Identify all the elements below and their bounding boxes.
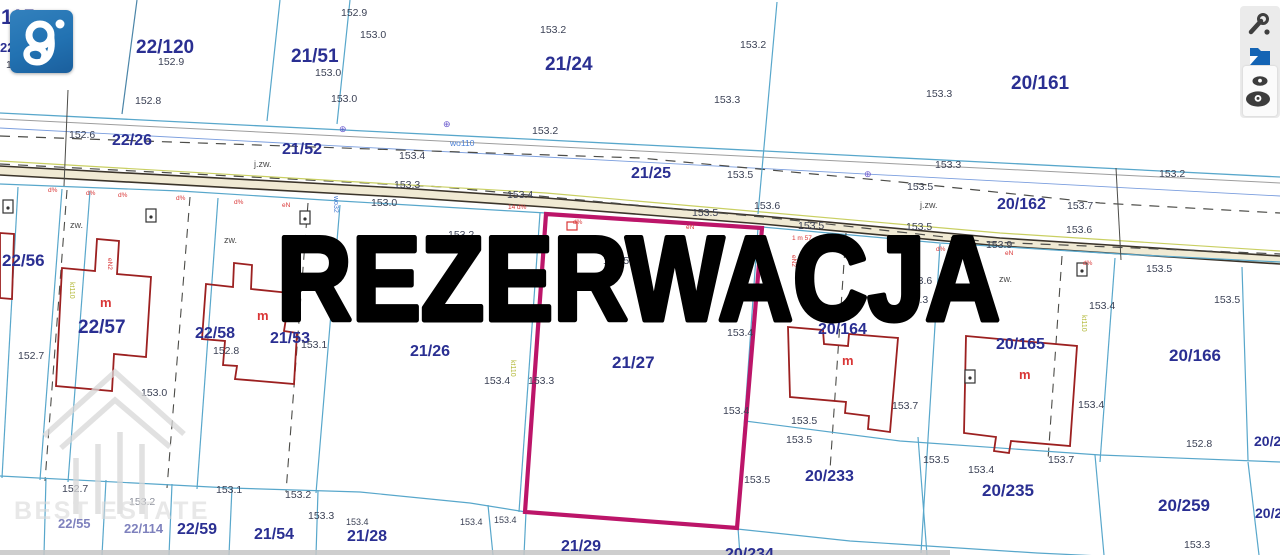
map-label: 153.7 bbox=[1067, 200, 1093, 212]
watermark: BEST ESTATE bbox=[14, 372, 210, 525]
map-label: 153.2 bbox=[740, 39, 766, 51]
g-logo-icon: g bbox=[10, 10, 73, 73]
map-label: 153.3 bbox=[935, 159, 961, 171]
map-label: 153.0 bbox=[371, 197, 397, 209]
parcel-label: 20/235 bbox=[982, 481, 1034, 500]
map-label: d% bbox=[48, 187, 58, 194]
utility-box-symbol bbox=[1080, 269, 1083, 272]
boundary-line bbox=[758, 2, 777, 214]
map-label: 153.4 bbox=[507, 189, 533, 201]
utility-box-symbol bbox=[968, 376, 971, 379]
map-label: wo32 bbox=[332, 195, 339, 213]
parcel-label: 22/120 bbox=[136, 37, 194, 58]
map-canvas[interactable]: 11522/122/12021/5121/2420/16122/2621/522… bbox=[0, 0, 1280, 555]
map-label: 153.3 bbox=[528, 375, 554, 387]
map-label: m bbox=[257, 308, 269, 323]
map-label: 153.3 bbox=[926, 88, 952, 100]
map-label: j.zw. bbox=[253, 159, 272, 169]
eye-icon-large[interactable] bbox=[1245, 86, 1271, 112]
map-label: d% bbox=[234, 199, 244, 206]
folder-icon[interactable] bbox=[1247, 43, 1273, 69]
map-label: 153.7 bbox=[892, 400, 918, 412]
boundary-line bbox=[1048, 256, 1062, 460]
parcel-label: 20/161 bbox=[1011, 73, 1070, 94]
map-label: 153.3 bbox=[714, 94, 740, 106]
map-label: 152.8 bbox=[135, 95, 161, 107]
map-label: 153.4 bbox=[484, 375, 510, 387]
parcel-label: 21/54 bbox=[254, 526, 294, 543]
parcel-label: 21/27 bbox=[612, 353, 655, 372]
map-label: 153.5 bbox=[786, 434, 812, 446]
boundary-line bbox=[2, 187, 18, 478]
map-label: wo110 bbox=[449, 138, 475, 148]
map-label: ⊕ bbox=[443, 119, 451, 129]
parcel-label: 22/58 bbox=[195, 325, 235, 342]
parcel-label: 21/24 bbox=[545, 54, 593, 75]
boundary-line bbox=[267, 0, 280, 121]
map-label: 153.4 bbox=[968, 464, 994, 476]
map-label: zw. bbox=[224, 235, 237, 245]
map-label: 152.7 bbox=[18, 350, 44, 362]
map-label: 152.9 bbox=[158, 56, 184, 68]
map-label: 153.0 bbox=[360, 29, 386, 41]
map-label: 153.0 bbox=[331, 93, 357, 105]
map-label: kt110 bbox=[1080, 315, 1087, 332]
map-label: ⊕ bbox=[864, 169, 872, 179]
parcel-label: 20/2 bbox=[1254, 433, 1280, 449]
map-label: zw. bbox=[999, 274, 1012, 284]
map-label: ⊕ bbox=[339, 124, 347, 134]
map-label: d% bbox=[1083, 260, 1093, 267]
map-label: 153.2 bbox=[1159, 168, 1185, 180]
map-label: 153.4 bbox=[1089, 300, 1115, 312]
map-label: zw. bbox=[70, 220, 83, 230]
boundary-line bbox=[316, 491, 318, 555]
map-label: 153.6 bbox=[754, 200, 780, 212]
map-label: m bbox=[842, 353, 854, 368]
boundary-line bbox=[229, 487, 232, 555]
map-label: d% bbox=[86, 190, 96, 197]
parcel-label: 20/2 bbox=[1255, 505, 1280, 521]
map-label: m bbox=[1019, 367, 1031, 382]
map-label: j.zw. bbox=[919, 200, 938, 210]
map-label: 153.5 bbox=[1146, 263, 1172, 275]
boundary-line bbox=[1095, 455, 1104, 555]
parcel-label: 21/52 bbox=[282, 141, 322, 158]
map-label: 153.5 bbox=[791, 415, 817, 427]
parcel-label: 21/25 bbox=[631, 165, 671, 182]
map-label: 153.2 bbox=[532, 125, 558, 137]
boundary-line bbox=[1242, 267, 1248, 460]
map-label: 153.5 bbox=[744, 474, 770, 486]
boundary-line bbox=[197, 198, 218, 489]
map-label: kt110 bbox=[509, 360, 516, 377]
map-label: 152.9 bbox=[341, 7, 367, 19]
map-label: 153.2 bbox=[285, 489, 311, 501]
tool-icon[interactable] bbox=[1247, 12, 1273, 38]
cadastral-map-screenshot: 11522/122/12021/5121/2420/16122/2621/522… bbox=[0, 0, 1280, 555]
utility-box-symbol bbox=[149, 215, 152, 218]
map-label: 152.6 bbox=[69, 129, 95, 141]
parcel-label: 22/56 bbox=[2, 251, 45, 270]
map-label: 153.6 bbox=[1066, 224, 1092, 236]
parcel-label: 22/57 bbox=[78, 317, 126, 338]
map-label: 153.3 bbox=[1184, 539, 1210, 551]
parcel-label: 21/29 bbox=[561, 538, 601, 555]
map-label: 153.3 bbox=[308, 510, 334, 522]
boundary-line bbox=[488, 505, 493, 555]
parcel-label: 21/51 bbox=[291, 46, 339, 67]
parcel-label: 20/166 bbox=[1169, 346, 1221, 365]
parcel-label: 20/233 bbox=[805, 468, 854, 485]
boundary-line bbox=[45, 190, 67, 481]
parcel-label: 20/234 bbox=[725, 546, 774, 555]
map-label: 153.4 bbox=[1078, 399, 1104, 411]
parcel-label: 20/162 bbox=[997, 196, 1046, 213]
boundary-line bbox=[1100, 258, 1115, 462]
map-label: 153.4 bbox=[494, 515, 517, 525]
building-outline bbox=[964, 336, 1077, 453]
map-label: 153.5 bbox=[727, 169, 753, 181]
map-label: 153.5 bbox=[907, 181, 933, 193]
map-label: 153.4 bbox=[460, 517, 483, 527]
map-label: eN bbox=[282, 202, 291, 209]
map-label: eN2 bbox=[106, 258, 113, 270]
map-label: 153.5 bbox=[1214, 294, 1240, 306]
bottom-strip bbox=[0, 550, 950, 555]
map-label: 153.4 bbox=[346, 517, 369, 527]
map-label: 14 d% bbox=[508, 204, 527, 211]
watermark-text: BEST ESTATE bbox=[14, 497, 210, 525]
geoportal-logo[interactable]: g bbox=[10, 10, 73, 73]
map-label: 152.8 bbox=[213, 345, 239, 357]
parcel-label: 20/165 bbox=[996, 336, 1045, 353]
map-label: 153.4 bbox=[399, 150, 425, 162]
map-label: d% bbox=[118, 192, 128, 199]
parcel-label: 20/259 bbox=[1158, 496, 1210, 515]
map-label: 153.2 bbox=[540, 24, 566, 36]
map-label: 153.0 bbox=[315, 67, 341, 79]
map-label: 153.1 bbox=[216, 484, 242, 496]
utility-box-symbol bbox=[6, 206, 9, 209]
boundary-line bbox=[524, 512, 526, 555]
parcel-label: 21/28 bbox=[347, 528, 387, 545]
rezerwacja-overlay: REZERWACJA bbox=[277, 212, 1000, 346]
map-label: eN bbox=[1005, 250, 1014, 257]
building-outline bbox=[56, 239, 151, 391]
map-label: 153.4 bbox=[723, 405, 749, 417]
map-label: d% bbox=[176, 195, 186, 202]
parcel-label: 22/26 bbox=[112, 132, 152, 149]
map-label: 152.8 bbox=[1186, 438, 1212, 450]
map-label: 153.7 bbox=[1048, 454, 1074, 466]
map-label: kt110 bbox=[68, 282, 75, 299]
map-label: m bbox=[100, 295, 112, 310]
map-label: 153.5 bbox=[923, 454, 949, 466]
overlay-tools-panel bbox=[1240, 6, 1280, 118]
map-label: 153.3 bbox=[394, 179, 420, 191]
